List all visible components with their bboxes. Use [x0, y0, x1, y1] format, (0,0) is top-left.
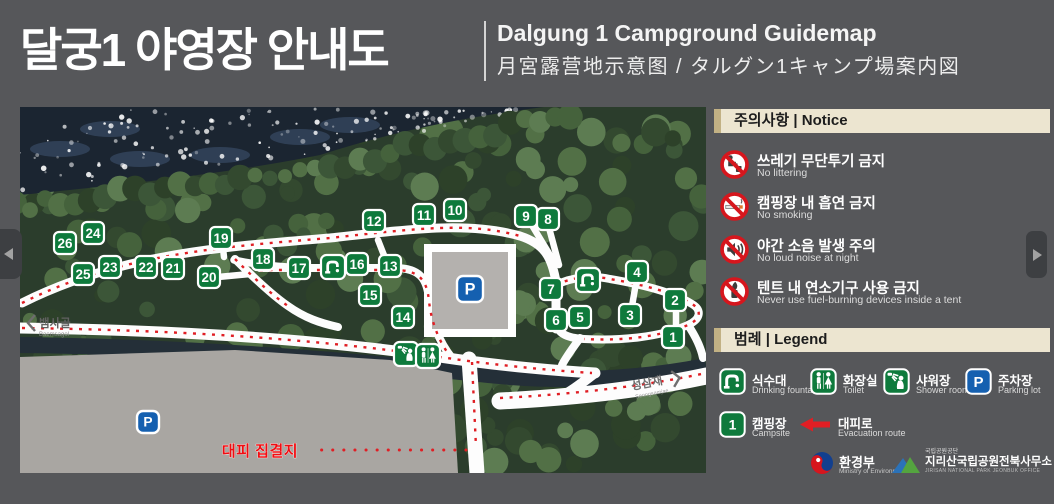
- chevron-left-icon: [4, 248, 13, 260]
- campsite-marker-13: 13: [379, 255, 401, 277]
- svg-text:P: P: [973, 374, 983, 391]
- drinking-fountain-marker: [576, 268, 600, 292]
- svg-text:P: P: [465, 280, 476, 298]
- svg-text:14: 14: [395, 310, 411, 325]
- no-littering-icon: [720, 150, 749, 179]
- park-office-name-ko: 지리산국립공원전북사무소: [925, 453, 1052, 469]
- svg-text:Baemsagol: Baemsagol: [39, 332, 69, 338]
- svg-text:21: 21: [165, 261, 181, 276]
- notice-text-en: No littering: [757, 167, 807, 179]
- toilet-marker: [416, 344, 440, 368]
- page-title-korean: 달궁1 야영장 안내도: [20, 14, 388, 80]
- legend-text-en: Toilet: [843, 385, 864, 395]
- svg-text:2: 2: [671, 293, 679, 308]
- no-fuel-device-icon: [720, 277, 749, 306]
- campsite-marker-9: 9: [515, 205, 537, 227]
- campsite-marker-23: 23: [99, 256, 121, 278]
- page-title-english: Dalgung 1 Campground Guidemap: [497, 20, 877, 47]
- legend-text-en: Campsite: [752, 428, 790, 438]
- legend-section-title: 범례 | Legend: [714, 328, 1050, 352]
- parking-marker: P: [137, 411, 159, 433]
- campsite-marker-16: 16: [346, 253, 368, 275]
- campsite-marker-17: 17: [288, 257, 310, 279]
- svg-text:3: 3: [626, 308, 634, 323]
- notice-item: 캠핑장 내 흡연 금지 No smoking: [714, 192, 1050, 228]
- svg-text:11: 11: [417, 208, 432, 223]
- campsite-marker-4: 4: [626, 261, 648, 283]
- svg-text:17: 17: [291, 261, 306, 276]
- campsite-marker-5: 5: [569, 306, 591, 328]
- legend-item: P 주차장 Parking lot: [965, 368, 1054, 398]
- shower-icon: [883, 368, 910, 400]
- svg-text:24: 24: [85, 226, 101, 241]
- campsite-marker-14: 14: [392, 306, 414, 328]
- campsite-marker-11: 11: [413, 204, 435, 226]
- notice-item: 야간 소음 발생 주의 No loud noise at night: [714, 235, 1050, 271]
- svg-text:13: 13: [382, 259, 398, 274]
- parking-icon: P: [965, 368, 992, 400]
- legend-text-en: Evacuation route: [838, 428, 906, 438]
- legend-text-en: Shower room: [916, 385, 970, 395]
- svg-text:9: 9: [522, 209, 530, 224]
- page-title-cjk: 月宮露营地示意图 / タルグン1キャンプ場案内図: [497, 50, 960, 79]
- campsite-marker-6: 6: [545, 309, 567, 331]
- notice-item: 쓰레기 무단투기 금지 No littering: [714, 150, 1050, 186]
- legend-item: 대피로 Evacuation route: [798, 411, 958, 441]
- svg-text:1: 1: [669, 330, 677, 345]
- parking-marker: P: [457, 276, 483, 302]
- drinking-fountain-icon: [719, 368, 746, 400]
- drinking-fountain-marker: [321, 255, 345, 279]
- notice-text-en: No loud noise at night: [757, 252, 859, 264]
- svg-text:뱀사골: 뱀사골: [39, 316, 71, 330]
- svg-text:10: 10: [447, 203, 462, 218]
- park-office-name-en: JIRISAN NATIONAL PARK JEONBUK OFFICE: [925, 468, 1040, 474]
- notice-text-en: Never use fuel-burning devices inside a …: [757, 294, 961, 306]
- svg-text:6: 6: [552, 313, 560, 328]
- svg-text:5: 5: [576, 310, 584, 325]
- svg-text:16: 16: [349, 257, 365, 272]
- notice-section-title: 주의사항 | Notice: [714, 109, 1050, 133]
- campsite-marker-15: 15: [359, 284, 381, 306]
- svg-text:19: 19: [213, 231, 228, 246]
- campsite-marker-12: 12: [363, 210, 385, 232]
- notice-text-en: No smoking: [757, 209, 812, 221]
- toilet-icon: [810, 368, 837, 400]
- campsite-marker-18: 18: [252, 248, 274, 270]
- previous-map-button[interactable]: [0, 229, 22, 279]
- svg-text:4: 4: [633, 265, 641, 280]
- campsite-marker-7: 7: [540, 278, 562, 300]
- map-layers: 뱀사골Baemsagol성삼재Seongsamjae대피 집결지PP123456…: [20, 107, 706, 473]
- campsite-marker-22: 22: [135, 256, 157, 278]
- svg-text:7: 7: [547, 282, 555, 297]
- notice-item: 텐트 내 연소기구 사용 금지 Never use fuel-burning d…: [714, 277, 1050, 313]
- no-loud-noise-icon: [720, 235, 749, 264]
- campsite-marker-24: 24: [82, 222, 104, 244]
- campsite-marker-19: 19: [210, 227, 232, 249]
- national-park-logo: [892, 454, 920, 479]
- campsite-marker-3: 3: [619, 304, 641, 326]
- svg-text:12: 12: [366, 214, 381, 229]
- title-divider: [484, 21, 486, 81]
- svg-text:22: 22: [138, 260, 153, 275]
- campsite-marker-1: 1: [662, 326, 684, 348]
- svg-text:26: 26: [57, 236, 73, 251]
- campsite-marker-26: 26: [54, 232, 76, 254]
- campsite-marker-25: 25: [72, 263, 94, 285]
- evacuation-route-icon: [798, 416, 832, 438]
- assembly-point-label: 대피 집결지: [222, 442, 298, 460]
- svg-text:25: 25: [75, 267, 91, 282]
- ministry-of-environment-logo: [810, 451, 834, 480]
- svg-text:23: 23: [102, 260, 118, 275]
- svg-text:20: 20: [201, 270, 216, 285]
- campsite-marker-20: 20: [198, 266, 220, 288]
- svg-text:8: 8: [544, 212, 552, 227]
- campsite-marker-2: 2: [664, 289, 686, 311]
- campground-map: 뱀사골Baemsagol성삼재Seongsamjae대피 집결지PP123456…: [20, 107, 706, 473]
- svg-text:15: 15: [362, 288, 378, 303]
- campsite-marker-8: 8: [537, 208, 559, 230]
- campground-map-image: 뱀사골Baemsagol성삼재Seongsamjae대피 집결지PP123456…: [20, 107, 706, 473]
- no-smoking-icon: [720, 192, 749, 221]
- svg-text:1: 1: [729, 417, 737, 433]
- svg-text:P: P: [143, 415, 152, 430]
- svg-text:18: 18: [255, 252, 271, 267]
- shower-marker: [394, 342, 418, 366]
- legend-text-en: Parking lot: [998, 385, 1041, 395]
- campsite-marker-10: 10: [444, 199, 466, 221]
- campsite-icon: 1: [719, 411, 746, 443]
- campsite-marker-21: 21: [162, 257, 184, 279]
